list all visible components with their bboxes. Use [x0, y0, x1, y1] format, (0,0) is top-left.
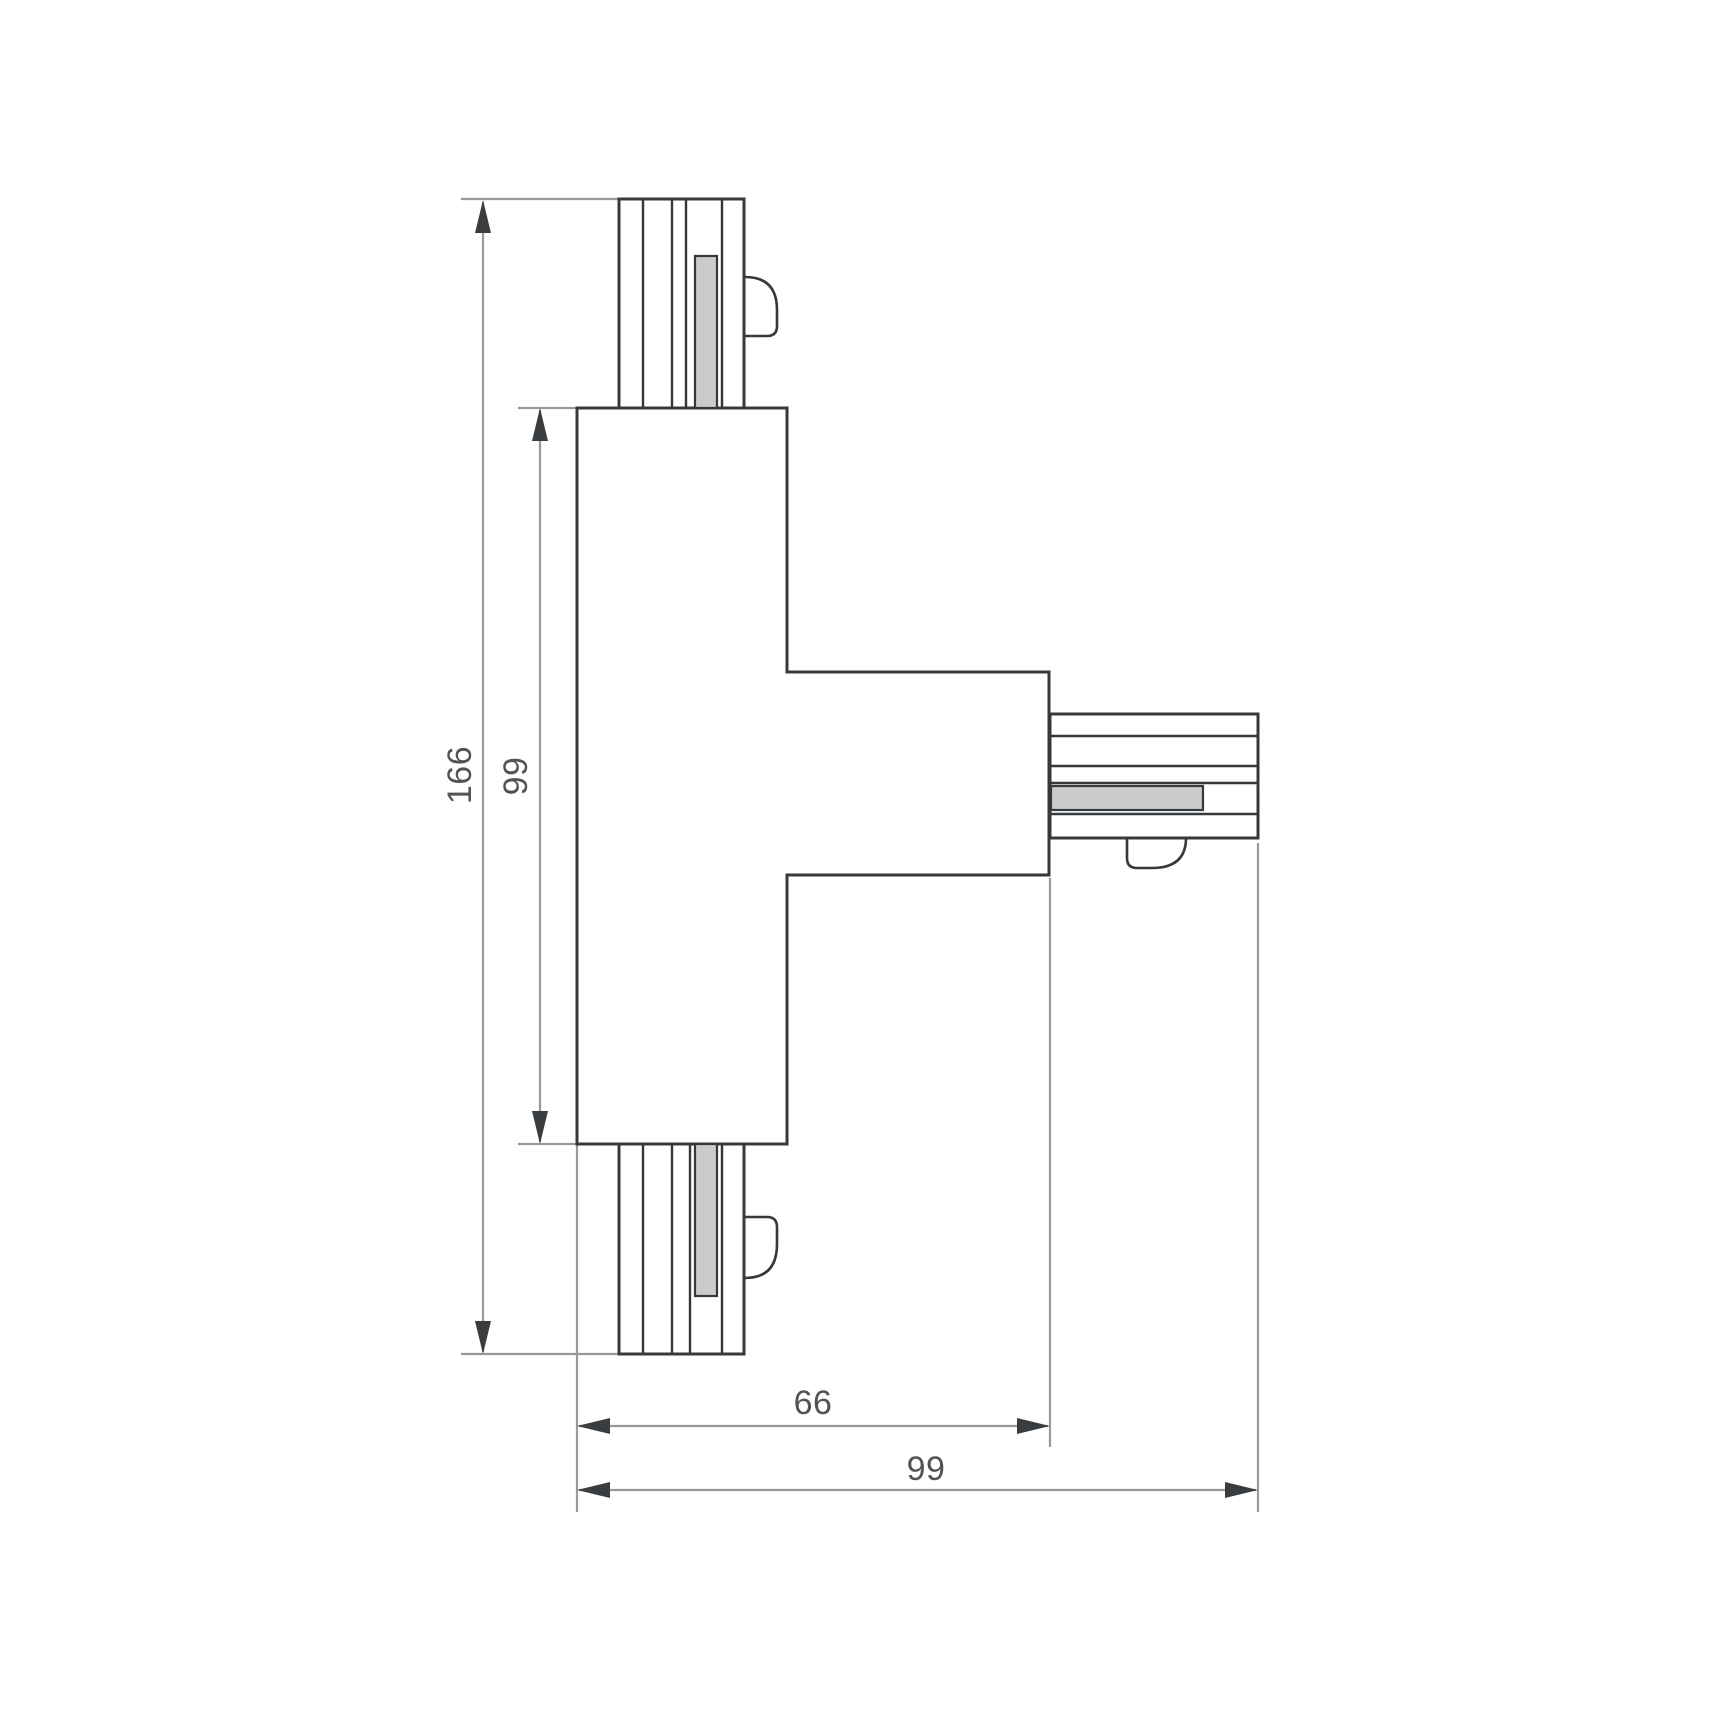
- arrowhead-up-99: [532, 408, 548, 441]
- latch-tab: [745, 277, 777, 336]
- arrowhead-right-99h: [1225, 1482, 1258, 1498]
- conductor-strip: [1051, 786, 1203, 810]
- conductor-strip: [695, 1144, 717, 1296]
- dimension-labels: 166 99 66 99: [441, 746, 946, 1488]
- arrowhead-left-66: [577, 1418, 610, 1434]
- right-track-connector: [1050, 714, 1258, 868]
- technical-drawing: 166 99 66 99: [0, 0, 1720, 1720]
- top-connector-outline: [619, 199, 744, 408]
- dimension-label-166: 166: [441, 746, 479, 804]
- t-connector-body: [577, 408, 1049, 1144]
- latch-tab: [745, 1217, 777, 1278]
- dimension-label-66: 66: [794, 1384, 833, 1422]
- arrowhead-down-99: [532, 1111, 548, 1144]
- dimension-label-99-vertical: 99: [497, 757, 535, 796]
- drawing-page: 166 99 66 99: [0, 0, 1720, 1720]
- arrowhead-down-166: [475, 1321, 491, 1354]
- bottom-connector-outline: [619, 1144, 744, 1354]
- latch-tab: [1127, 838, 1186, 868]
- right-connector-outline: [1050, 714, 1258, 838]
- top-track-connector: [619, 199, 777, 408]
- arrowhead-left-99h: [577, 1482, 610, 1498]
- bottom-track-connector: [619, 1144, 777, 1354]
- dimension-system: [461, 199, 1258, 1512]
- conductor-strip: [695, 256, 717, 408]
- dimension-label-99-horizontal: 99: [907, 1450, 946, 1488]
- arrowhead-up-166: [475, 200, 491, 233]
- arrowhead-right-66: [1017, 1418, 1050, 1434]
